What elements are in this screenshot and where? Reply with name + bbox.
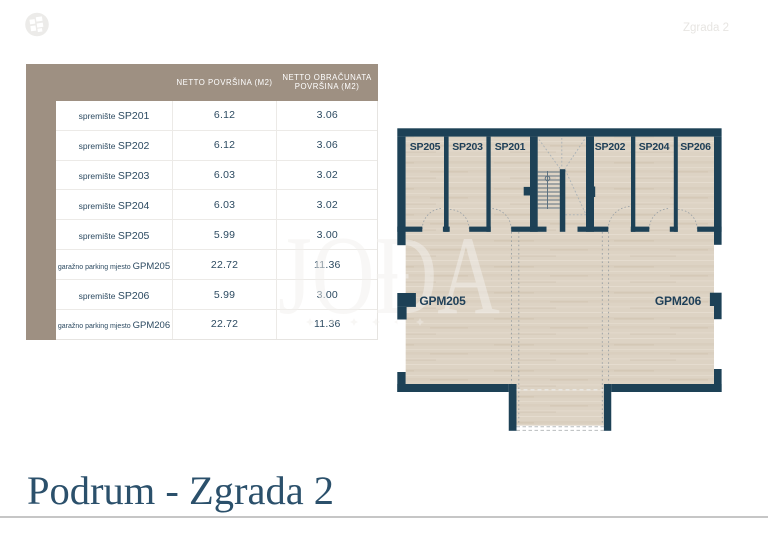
svg-text:JOĐA: JOĐA	[278, 214, 500, 338]
svg-text:SP203: SP203	[452, 141, 483, 153]
svg-text:SP202: SP202	[595, 141, 626, 153]
svg-text:SP205: SP205	[410, 141, 441, 153]
svg-text:GPM205: GPM205	[419, 294, 466, 308]
svg-text:SP204: SP204	[639, 141, 670, 153]
svg-text:SP201: SP201	[495, 141, 526, 153]
svg-text:SP206: SP206	[680, 141, 711, 153]
svg-text:GPM206: GPM206	[655, 294, 702, 308]
